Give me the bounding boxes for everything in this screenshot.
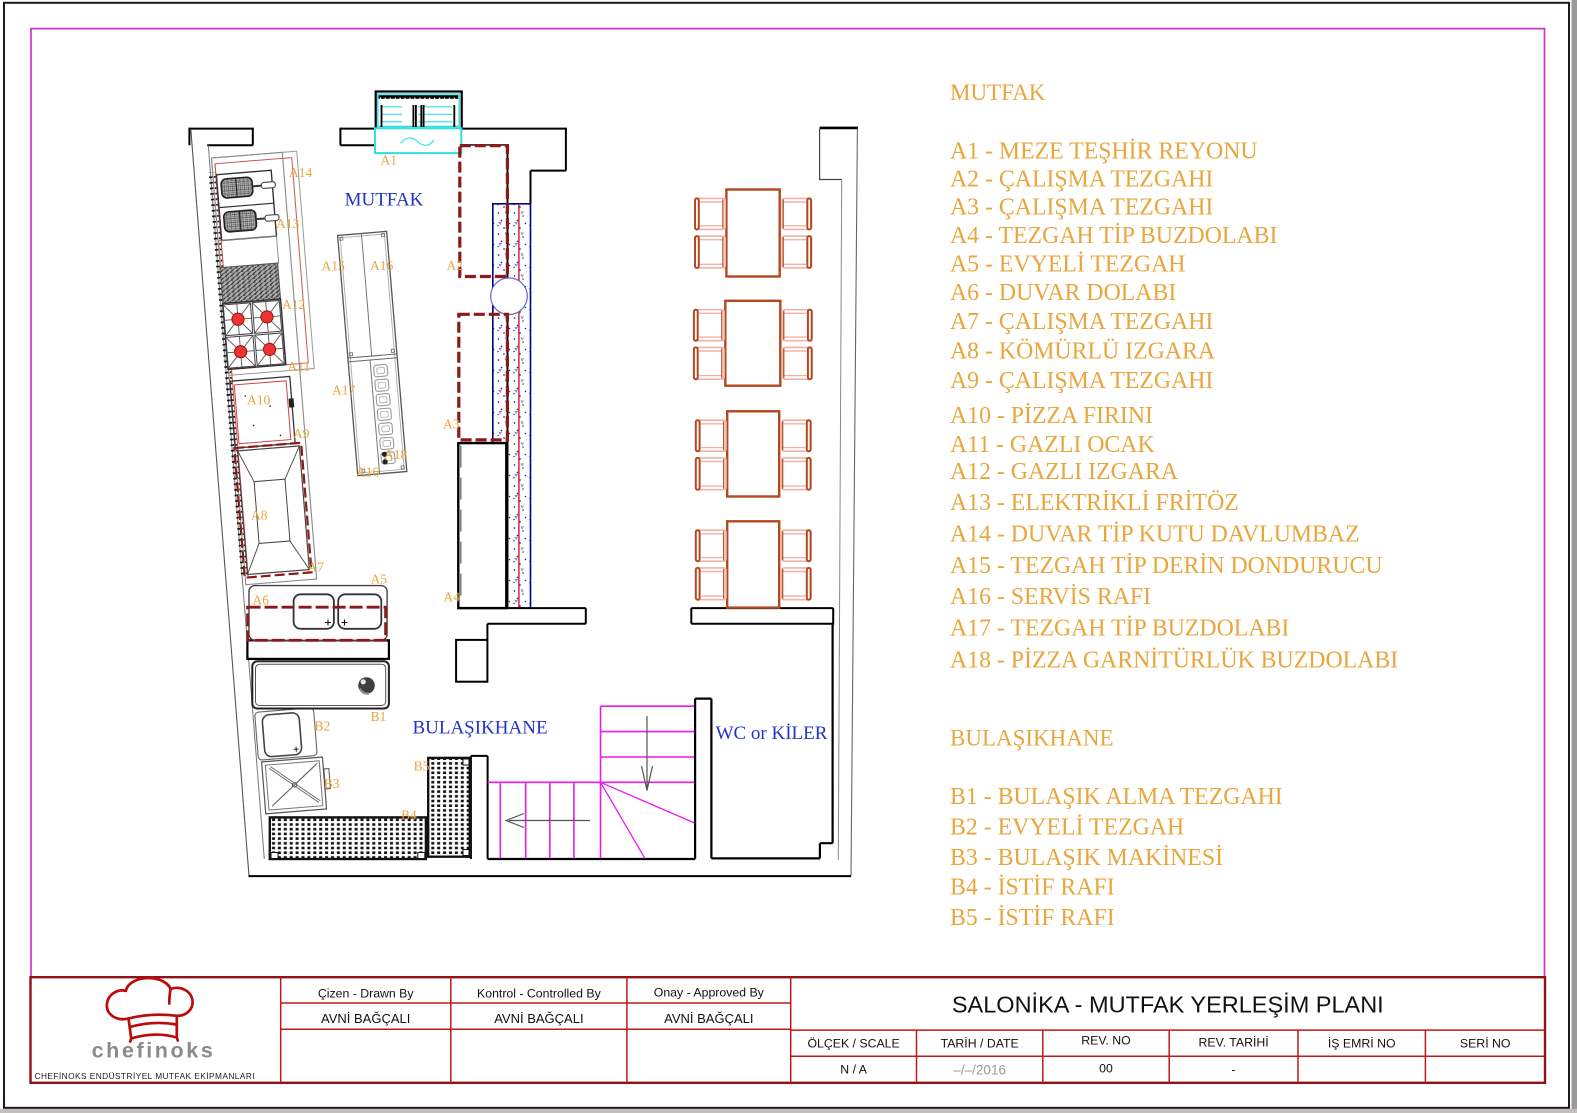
svg-text:A3: A3: [443, 417, 460, 432]
svg-text:A17: A17: [332, 383, 355, 398]
svg-text:SERİ NO: SERİ NO: [1460, 1037, 1511, 1051]
svg-text:–/–/2016: –/–/2016: [953, 1063, 1006, 1078]
svg-text:B4: B4: [401, 808, 417, 823]
svg-text:BULAŞIKHANE: BULAŞIKHANE: [412, 718, 547, 739]
svg-text:Kontrol - Controlled By: Kontrol - Controlled By: [477, 987, 602, 1001]
svg-text:B1 - BULAŞIK ALMA TEZGAHI: B1 - BULAŞIK ALMA TEZGAHI: [950, 784, 1283, 810]
svg-text:-: -: [1232, 1063, 1236, 1077]
svg-text:A12 - GAZLI IZGARA: A12 - GAZLI IZGARA: [950, 459, 1179, 485]
svg-text:AVNİ BAĞÇALI: AVNİ BAĞÇALI: [664, 1011, 753, 1026]
svg-text:A6: A6: [253, 593, 270, 608]
svg-text:MUTFAK: MUTFAK: [950, 80, 1046, 105]
svg-text:chefinoks: chefinoks: [92, 1039, 216, 1063]
svg-text:REV. TARİHİ: REV. TARİHİ: [1199, 1036, 1269, 1050]
svg-text:B5: B5: [414, 759, 430, 774]
svg-text:A12: A12: [282, 297, 305, 312]
svg-text:A11: A11: [288, 359, 311, 374]
svg-text:A8: A8: [251, 508, 268, 523]
svg-text:A2: A2: [447, 258, 464, 273]
svg-text:A7 - ÇALIŞMA TEZGAHI: A7 - ÇALIŞMA TEZGAHI: [950, 309, 1213, 335]
svg-text:REV. NO: REV. NO: [1081, 1034, 1130, 1048]
svg-text:A18 - PİZZA GARNİTÜRLÜK BUZDOL: A18 - PİZZA GARNİTÜRLÜK BUZDOLABI: [950, 648, 1398, 674]
svg-text:A16 - SERVİS RAFI: A16 - SERVİS RAFI: [950, 584, 1151, 610]
svg-text:Çizen - Drawn By: Çizen - Drawn By: [318, 987, 415, 1001]
svg-text:B4 - İSTİF RAFI: B4 - İSTİF RAFI: [950, 875, 1115, 901]
svg-text:A6 - DUVAR DOLABI: A6 - DUVAR DOLABI: [950, 280, 1176, 306]
svg-text:A1: A1: [381, 153, 398, 168]
svg-text:A18: A18: [384, 447, 407, 462]
svg-text:A14 - DUVAR TİP KUTU DAVLUMBAZ: A14 - DUVAR TİP KUTU DAVLUMBAZ: [950, 522, 1360, 548]
svg-text:B5 - İSTİF RAFI: B5 - İSTİF RAFI: [950, 905, 1115, 931]
svg-text:A17 - TEZGAH TİP BUZDOLABI: A17 - TEZGAH TİP BUZDOLABI: [950, 616, 1289, 642]
svg-text:B1: B1: [371, 709, 387, 724]
svg-text:A8 - KÖMÜRLÜ IZGARA: A8 - KÖMÜRLÜ IZGARA: [950, 339, 1216, 365]
svg-text:B2 - EVYELİ TEZGAH: B2 - EVYELİ TEZGAH: [950, 815, 1184, 841]
svg-text:B3 - BULAŞIK MAKİNESİ: B3 - BULAŞIK MAKİNESİ: [950, 845, 1223, 871]
svg-text:A15: A15: [322, 259, 345, 274]
svg-text:A3 - ÇALIŞMA TEZGAHI: A3 - ÇALIŞMA TEZGAHI: [950, 195, 1213, 221]
svg-text:B3: B3: [324, 776, 340, 791]
svg-text:A4: A4: [444, 590, 461, 605]
svg-text:WC or KİLER: WC or KİLER: [716, 723, 828, 744]
svg-text:AVNİ BAĞÇALI: AVNİ BAĞÇALI: [321, 1011, 410, 1026]
svg-text:A16: A16: [370, 258, 393, 273]
svg-text:A16: A16: [356, 465, 379, 480]
svg-text:A5: A5: [371, 572, 388, 587]
svg-text:A9: A9: [293, 426, 310, 441]
svg-text:A9 - ÇALIŞMA TEZGAHI: A9 - ÇALIŞMA TEZGAHI: [950, 368, 1213, 394]
svg-text:A15 - TEZGAH TİP DERİN DONDURU: A15 - TEZGAH TİP DERİN DONDURUCU: [950, 553, 1383, 579]
svg-text:A7: A7: [308, 560, 325, 575]
svg-text:MUTFAK: MUTFAK: [345, 190, 424, 211]
svg-text:A1 - MEZE TEŞHİR REYONU: A1 - MEZE TEŞHİR REYONU: [950, 139, 1258, 165]
svg-text:İŞ EMRİ NO: İŞ EMRİ NO: [1328, 1037, 1396, 1051]
svg-text:Onay - Approved By: Onay - Approved By: [654, 986, 765, 1000]
svg-text:BULAŞIKHANE: BULAŞIKHANE: [950, 726, 1114, 751]
svg-text:A10 - PİZZA FIRINI: A10 - PİZZA FIRINI: [950, 403, 1153, 429]
svg-text:A13: A13: [276, 216, 299, 231]
svg-text:B2: B2: [315, 719, 331, 734]
svg-text:ÖLÇEK / SCALE: ÖLÇEK / SCALE: [807, 1037, 899, 1051]
svg-text:CHEFİNOKS ENDÜSTRİYEL MUTFAK E: CHEFİNOKS ENDÜSTRİYEL MUTFAK EKİPMANLARI: [35, 1071, 256, 1081]
svg-text:A10: A10: [247, 393, 270, 408]
svg-text:A2 - ÇALIŞMA TEZGAHI: A2 - ÇALIŞMA TEZGAHI: [950, 167, 1213, 193]
svg-text:A11 - GAZLI OCAK: A11 - GAZLI OCAK: [950, 432, 1155, 458]
svg-text:A5 - EVYELİ TEZGAH: A5 - EVYELİ TEZGAH: [950, 252, 1186, 278]
svg-text:N / A: N / A: [840, 1063, 867, 1077]
svg-text:TARİH / DATE: TARİH / DATE: [941, 1037, 1019, 1051]
svg-text:AVNİ BAĞÇALI: AVNİ BAĞÇALI: [494, 1011, 583, 1026]
svg-text:A14: A14: [289, 165, 312, 180]
svg-text:A4 - TEZGAH TİP BUZDOLABI: A4 - TEZGAH TİP BUZDOLABI: [950, 223, 1277, 249]
svg-text:SALONİKA - MUTFAK YERLEŞİM PLA: SALONİKA - MUTFAK YERLEŞİM PLANI: [952, 992, 1384, 1018]
svg-text:A13 - ELEKTRİKLİ FRİTÖZ: A13 - ELEKTRİKLİ FRİTÖZ: [950, 490, 1239, 516]
svg-text:00: 00: [1099, 1062, 1113, 1076]
